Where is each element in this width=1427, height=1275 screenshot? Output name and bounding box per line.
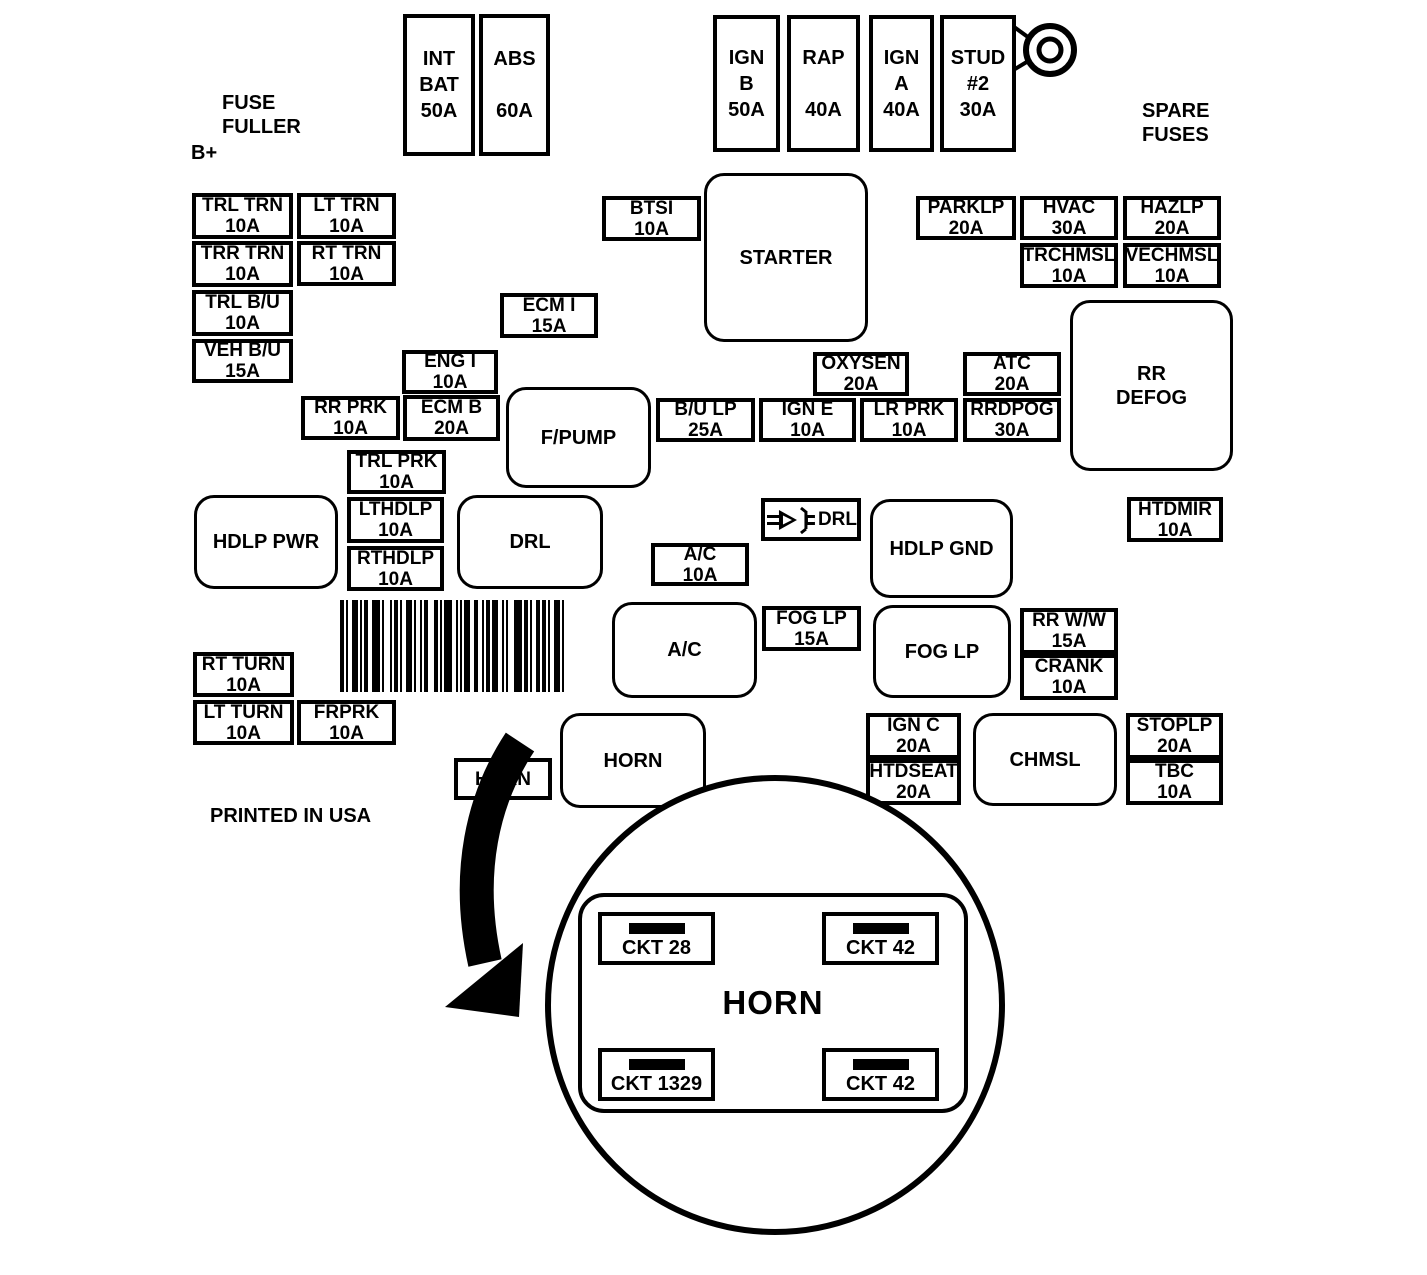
hdlp-gnd-relay-label: HDLP GND (889, 537, 993, 561)
fuse-puller-label-line: FUSE (222, 91, 301, 115)
crank-fuse: CRANK10A (1020, 654, 1118, 700)
lt-turn-fuse-label: LT TURN (204, 702, 284, 723)
trl-bu-fuse-label: TRL B/U (205, 292, 280, 313)
horn-terminal-1: CKT 28 (598, 912, 715, 965)
rt-turn-fuse-label: RT TURN (202, 654, 285, 675)
frprk-fuse-label: FRPRK (314, 702, 379, 723)
hdlp-gnd-relay: HDLP GND (870, 499, 1013, 598)
hdlp-pwr-relay: HDLP PWR (194, 495, 338, 589)
ign-c-fuse-label: 20A (896, 736, 931, 757)
trr-trn-fuse: TRR TRN10A (192, 241, 293, 287)
int-bat-fuse-label: BAT (419, 72, 459, 98)
abs-fuse-label: 60A (496, 98, 533, 124)
printed-in-usa-label: PRINTED IN USA (210, 804, 371, 828)
frprk-fuse: FRPRK10A (297, 700, 396, 745)
fuse-puller-label: FUSEFULLER (222, 91, 301, 139)
trr-trn-fuse-label: TRR TRN (201, 243, 284, 264)
tbc-fuse-label: TBC (1155, 761, 1194, 782)
ign-b-fuse-label: 50A (728, 97, 765, 123)
rt-turn-fuse-label: 10A (226, 675, 261, 696)
lthdlp-fuse-label: LTHDLP (359, 499, 433, 520)
veh-bu-fuse-label: 15A (225, 361, 260, 382)
veh-bu-fuse: VEH B/U15A (192, 339, 293, 383)
drl-diode-label: DRL (818, 509, 857, 531)
horn-relay-label: HORN (604, 749, 663, 773)
parklp-fuse: PARKLP20A (916, 196, 1016, 240)
rr-defog-relay-label: RR (1137, 362, 1166, 386)
hdlp-pwr-relay-label: HDLP PWR (213, 530, 319, 554)
rr-prk-fuse: RR PRK10A (301, 396, 400, 440)
fuse-box-diagram: DRL HORN FUSEFULLERB+SPAREFUSESPRINTED I… (0, 0, 1427, 1275)
ecm-b-fuse-label: 20A (434, 418, 469, 439)
f-pump-relay-label: F/PUMP (541, 426, 617, 450)
rap-fuse-label: 40A (805, 97, 842, 123)
htdmir-fuse: HTDMIR10A (1127, 497, 1223, 542)
horn-terminal-2: CKT 42 (822, 912, 939, 965)
parklp-fuse-label: PARKLP (928, 197, 1005, 218)
eng-i-fuse: ENG I10A (402, 350, 498, 394)
btsi-fuse-label: 10A (634, 219, 669, 240)
lt-trn-fuse-label: 10A (329, 216, 364, 237)
hazlp-fuse: HAZLP20A (1123, 196, 1221, 240)
hazlp-fuse-label: HAZLP (1140, 197, 1203, 218)
ecm-i-fuse: ECM I15A (500, 293, 598, 338)
spare-fuses-label-line: FUSES (1142, 123, 1209, 147)
frprk-fuse-label: 10A (329, 723, 364, 744)
lt-turn-fuse: LT TURN10A (193, 700, 294, 745)
fog-lp-fuse-label: FOG LP (776, 608, 847, 629)
oxysen-fuse-label: 20A (844, 374, 879, 395)
eng-i-fuse-label: ENG I (424, 351, 476, 372)
bu-lp-fuse-label: 25A (688, 420, 723, 441)
lr-prk-fuse: LR PRK10A (860, 398, 958, 442)
terminal-label: CKT 42 (826, 1073, 935, 1096)
rt-trn-fuse-label: RT TRN (312, 243, 382, 264)
ign-e-fuse-label: 10A (790, 420, 825, 441)
trchmsl-fuse-label: 10A (1052, 266, 1087, 287)
terminal-contact-bar (853, 923, 909, 934)
rap-fuse-label (821, 71, 827, 97)
barcode (340, 600, 570, 692)
lt-trn-fuse-label: LT TRN (313, 195, 379, 216)
ign-b-fuse-label: IGN (729, 45, 765, 71)
trl-trn-fuse-label: TRL TRN (202, 195, 283, 216)
trr-trn-fuse-label: 10A (225, 264, 260, 285)
rrdpog-fuse-label: RRDPOG (970, 399, 1053, 420)
rr-prk-fuse-label: 10A (333, 418, 368, 439)
rr-defog-relay-label: DEFOG (1116, 386, 1187, 410)
terminal-label: CKT 28 (602, 937, 711, 960)
hazlp-fuse-label: 20A (1155, 218, 1190, 239)
lthdlp-fuse: LTHDLP10A (347, 497, 444, 543)
int-bat-fuse: INTBAT50A (403, 14, 475, 156)
stud-2-fuse: STUD#230A (940, 15, 1016, 152)
diode-icon (765, 505, 817, 535)
ign-a-fuse-label: 40A (883, 97, 920, 123)
terminal-contact-bar (853, 1059, 909, 1070)
spare-fuses-label-line: SPARE (1142, 99, 1209, 123)
eng-i-fuse-label: 10A (433, 372, 468, 393)
fog-lp-fuse: FOG LP15A (762, 606, 861, 651)
ecm-i-fuse-label: 15A (532, 316, 567, 337)
trl-bu-fuse: TRL B/U10A (192, 290, 293, 336)
rr-ww-fuse-label: 15A (1052, 631, 1087, 652)
rt-turn-fuse: RT TURN10A (193, 652, 294, 697)
htdseat-fuse-label: 20A (896, 782, 931, 803)
rr-prk-fuse-label: RR PRK (314, 397, 387, 418)
abs-fuse: ABS 60A (479, 14, 550, 156)
rr-defog-relay: RRDEFOG (1070, 300, 1233, 471)
stoplp-fuse-label: STOPLP (1137, 715, 1213, 736)
starter-relay: STARTER (704, 173, 868, 342)
ign-a-fuse: IGNA40A (869, 15, 934, 152)
ecm-b-fuse: ECM B20A (403, 395, 500, 441)
stud-2-fuse-label: #2 (967, 71, 989, 97)
spare-fuses-label: SPAREFUSES (1142, 99, 1209, 147)
bu-lp-fuse: B/U LP25A (656, 398, 755, 442)
int-bat-fuse-label: 50A (421, 98, 458, 124)
drl-diode-box: DRL (761, 498, 861, 541)
drl-relay-label: DRL (509, 530, 550, 554)
lr-prk-fuse-label: 10A (892, 420, 927, 441)
parklp-fuse-label: 20A (949, 218, 984, 239)
rt-trn-fuse-label: 10A (329, 264, 364, 285)
bu-lp-fuse-label: B/U LP (674, 399, 736, 420)
rthdlp-fuse-label: 10A (378, 569, 413, 590)
ac-fuse-label: A/C (684, 544, 717, 565)
vechmsl-fuse-label: VECHMSL (1126, 245, 1219, 266)
starter-relay-label: STARTER (740, 246, 833, 270)
magnifier-arrow-icon (415, 728, 575, 1038)
lthdlp-fuse-label: 10A (378, 520, 413, 541)
lt-trn-fuse: LT TRN10A (297, 193, 396, 239)
ecm-i-fuse-label: ECM I (523, 295, 576, 316)
trchmsl-fuse-label: TRCHMSL (1023, 245, 1116, 266)
trl-trn-fuse: TRL TRN10A (192, 193, 293, 239)
crank-fuse-label: CRANK (1035, 656, 1104, 677)
rthdlp-fuse: RTHDLP10A (347, 546, 444, 591)
int-bat-fuse-label: INT (423, 46, 455, 72)
hvac-fuse: HVAC30A (1020, 196, 1118, 240)
ign-b-fuse-label: B (739, 71, 753, 97)
trl-prk-fuse: TRL PRK10A (347, 450, 446, 494)
rt-trn-fuse: RT TRN10A (297, 241, 396, 286)
rap-fuse-label: RAP (802, 45, 844, 71)
terminal-label: CKT 1329 (602, 1073, 711, 1096)
ecm-b-fuse-label: ECM B (421, 397, 482, 418)
drl-relay: DRL (457, 495, 603, 589)
lr-prk-fuse-label: LR PRK (874, 399, 945, 420)
oxysen-fuse-label: OXYSEN (821, 353, 900, 374)
atc-fuse-label: ATC (993, 353, 1031, 374)
ac-relay-label: A/C (667, 638, 701, 662)
magnifier-horn-title: HORN (578, 984, 968, 1022)
trchmsl-fuse: TRCHMSL10A (1020, 243, 1118, 288)
terminal-contact-bar (629, 923, 685, 934)
f-pump-relay: F/PUMP (506, 387, 651, 488)
ign-e-fuse: IGN E10A (759, 398, 856, 442)
vechmsl-fuse-label: 10A (1155, 266, 1190, 287)
ign-a-fuse-label: IGN (884, 45, 920, 71)
atc-fuse: ATC20A (963, 352, 1061, 396)
fog-lp-relay: FOG LP (873, 605, 1011, 698)
horn-terminal-3: CKT 1329 (598, 1048, 715, 1101)
trl-trn-fuse-label: 10A (225, 216, 260, 237)
terminal-contact-bar (629, 1059, 685, 1070)
ac-fuse-label: 10A (683, 565, 718, 586)
ign-c-fuse-label: IGN C (887, 715, 940, 736)
btsi-fuse-label: BTSI (630, 198, 673, 219)
trl-prk-fuse-label: TRL PRK (356, 451, 438, 472)
htdmir-fuse-label: 10A (1158, 520, 1193, 541)
fog-lp-fuse-label: 15A (794, 629, 829, 650)
tbc-fuse: TBC10A (1126, 759, 1223, 805)
hvac-fuse-label: HVAC (1043, 197, 1095, 218)
ac-fuse: A/C10A (651, 543, 749, 586)
ac-relay: A/C (612, 602, 757, 698)
stoplp-fuse: STOPLP20A (1126, 713, 1223, 759)
fuse-puller-label-line: FULLER (222, 115, 301, 139)
chmsl-relay: CHMSL (973, 713, 1117, 806)
rr-ww-fuse: RR W/W15A (1020, 608, 1118, 654)
abs-fuse-label (512, 72, 518, 98)
stud-2-fuse-label: 30A (960, 97, 997, 123)
ign-e-fuse-label: IGN E (782, 399, 834, 420)
horn-terminal-4: CKT 42 (822, 1048, 939, 1101)
hvac-fuse-label: 30A (1052, 218, 1087, 239)
abs-fuse-label: ABS (493, 46, 535, 72)
ign-c-fuse: IGN C20A (866, 713, 961, 759)
htdseat-fuse-label: HTDSEAT (869, 761, 957, 782)
trl-prk-fuse-label: 10A (379, 472, 414, 493)
tbc-fuse-label: 10A (1157, 782, 1192, 803)
stud-ring-icon (1008, 14, 1088, 84)
atc-fuse-label: 20A (995, 374, 1030, 395)
rrdpog-fuse: RRDPOG30A (963, 398, 1061, 442)
htdmir-fuse-label: HTDMIR (1138, 499, 1212, 520)
rap-fuse: RAP 40A (787, 15, 860, 152)
htdseat-fuse: HTDSEAT20A (866, 759, 961, 805)
crank-fuse-label: 10A (1052, 677, 1087, 698)
fog-lp-relay-label: FOG LP (905, 640, 979, 664)
oxysen-fuse: OXYSEN20A (813, 352, 909, 396)
b-plus-label: B+ (191, 141, 217, 165)
b-plus-label-line: B+ (191, 141, 217, 165)
veh-bu-fuse-label: VEH B/U (204, 340, 281, 361)
rr-ww-fuse-label: RR W/W (1032, 610, 1106, 631)
vechmsl-fuse: VECHMSL10A (1123, 243, 1221, 288)
printed-in-usa-label-line: PRINTED IN USA (210, 804, 371, 828)
trl-bu-fuse-label: 10A (225, 313, 260, 334)
chmsl-relay-label: CHMSL (1009, 748, 1080, 772)
rthdlp-fuse-label: RTHDLP (357, 548, 434, 569)
stoplp-fuse-label: 20A (1157, 736, 1192, 757)
lt-turn-fuse-label: 10A (226, 723, 261, 744)
rrdpog-fuse-label: 30A (995, 420, 1030, 441)
stud-2-fuse-label: STUD (951, 45, 1005, 71)
terminal-label: CKT 42 (826, 937, 935, 960)
ign-a-fuse-label: A (894, 71, 908, 97)
btsi-fuse: BTSI10A (602, 196, 701, 241)
ign-b-fuse: IGNB50A (713, 15, 780, 152)
